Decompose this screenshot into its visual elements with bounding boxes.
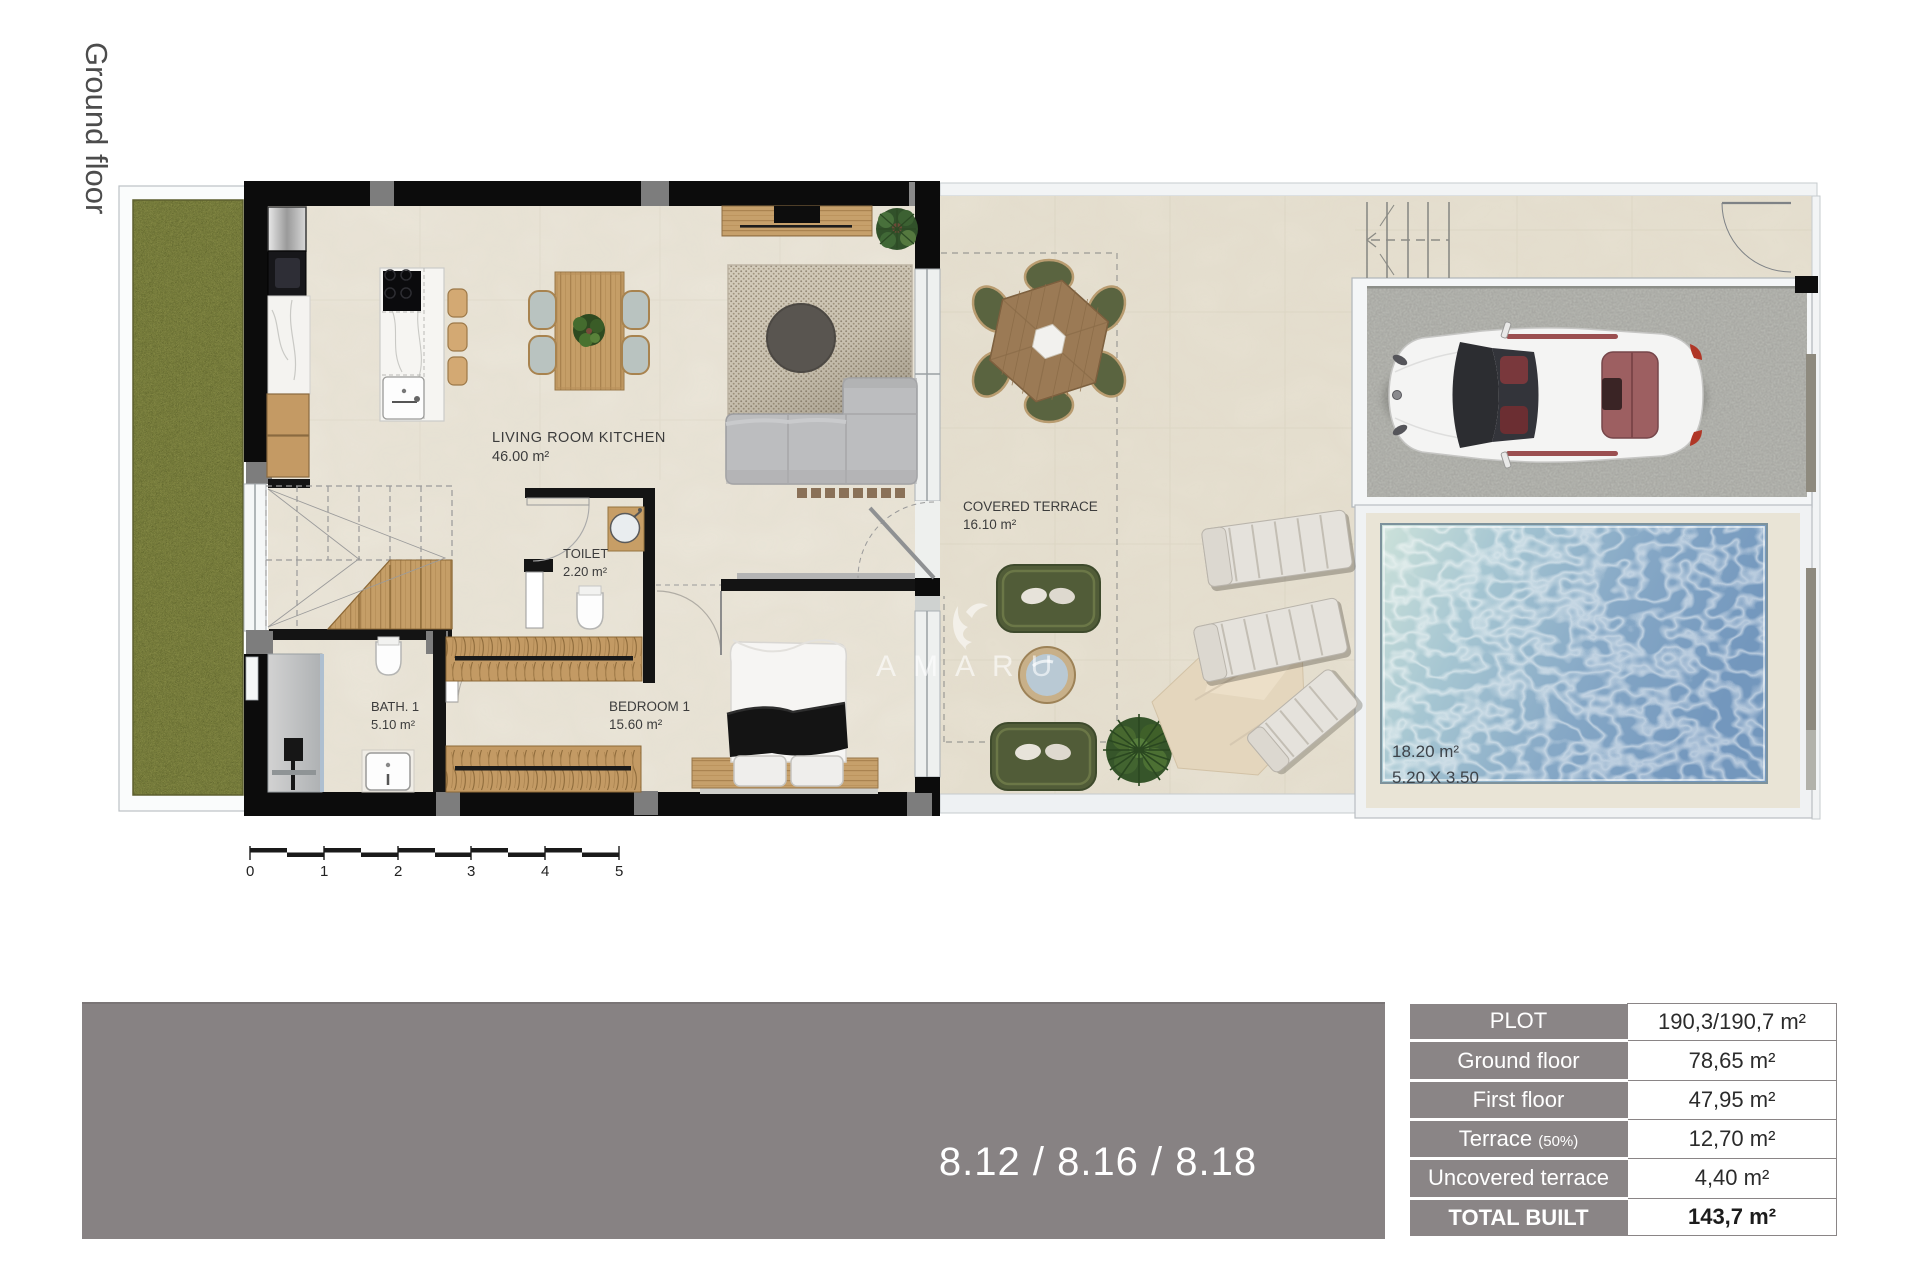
svg-text:5.10 m²: 5.10 m² bbox=[371, 717, 416, 732]
svg-text:BATH. 1: BATH. 1 bbox=[371, 699, 419, 714]
svg-text:5.20 X 3.50: 5.20 X 3.50 bbox=[1392, 768, 1479, 787]
svg-text:BEDROOM 1: BEDROOM 1 bbox=[609, 699, 690, 714]
svg-text:18.20 m²: 18.20 m² bbox=[1392, 742, 1459, 761]
svg-text:TOILET: TOILET bbox=[563, 546, 608, 561]
svg-text:46.00 m²: 46.00 m² bbox=[492, 449, 549, 465]
svg-text:3: 3 bbox=[467, 863, 475, 880]
svg-text:LIVING ROOM KITCHEN: LIVING ROOM KITCHEN bbox=[492, 430, 666, 446]
svg-text:2: 2 bbox=[394, 863, 402, 880]
svg-text:0: 0 bbox=[246, 863, 254, 880]
svg-text:Ground floor: Ground floor bbox=[79, 42, 114, 214]
svg-text:5: 5 bbox=[615, 863, 623, 880]
svg-text:15.60 m²: 15.60 m² bbox=[609, 717, 663, 732]
svg-text:AMARU: AMARU bbox=[876, 650, 1069, 683]
svg-text:COVERED TERRACE: COVERED TERRACE bbox=[963, 499, 1098, 514]
svg-text:4: 4 bbox=[541, 863, 549, 880]
svg-text:2.20 m²: 2.20 m² bbox=[563, 564, 608, 579]
svg-text:16.10 m²: 16.10 m² bbox=[963, 517, 1017, 532]
svg-text:1: 1 bbox=[320, 863, 328, 880]
